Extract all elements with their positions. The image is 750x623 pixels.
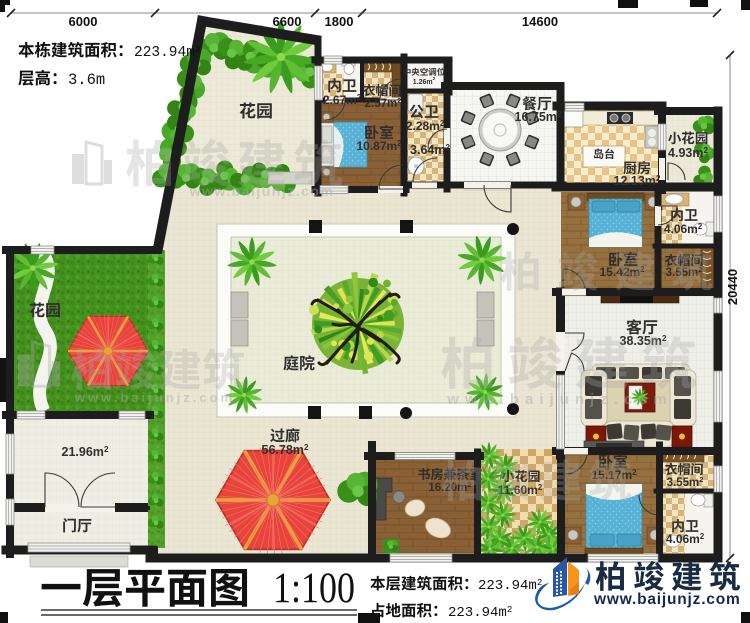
svg-text:21.96m2: 21.96m2 bbox=[62, 445, 109, 459]
svg-text:223.94m2: 223.94m2 bbox=[478, 577, 542, 594]
svg-text:56.78m2: 56.78m2 bbox=[262, 443, 309, 457]
svg-text:3.64m2: 3.64m2 bbox=[410, 143, 450, 157]
svg-text:www.baijunjz.com: www.baijunjz.com bbox=[189, 183, 335, 199]
svg-text:6000: 6000 bbox=[69, 14, 98, 29]
svg-text:12.13m2: 12.13m2 bbox=[614, 174, 661, 188]
svg-text:2.28m2: 2.28m2 bbox=[406, 119, 445, 133]
svg-text:2.67m2: 2.67m2 bbox=[323, 93, 362, 107]
svg-text:223.94m2: 223.94m2 bbox=[448, 604, 512, 621]
svg-text:www.baijunjz.com: www.baijunjz.com bbox=[446, 391, 672, 408]
svg-text:1800: 1800 bbox=[325, 14, 354, 29]
svg-text:223.94m2: 223.94m2 bbox=[134, 44, 201, 61]
svg-text:14600: 14600 bbox=[522, 14, 558, 29]
svg-text:2.57m2: 2.57m2 bbox=[365, 96, 402, 110]
svg-text:4.06m2: 4.06m2 bbox=[664, 222, 703, 236]
svg-text:10.87m2: 10.87m2 bbox=[356, 139, 402, 153]
svg-text:4.93m2: 4.93m2 bbox=[668, 146, 708, 160]
svg-text:3.55m2: 3.55m2 bbox=[667, 475, 704, 489]
svg-text:16.75m2: 16.75m2 bbox=[515, 110, 562, 124]
svg-text:3.6m: 3.6m bbox=[68, 71, 105, 89]
svg-text:20440: 20440 bbox=[725, 269, 740, 305]
svg-text:1:100: 1:100 bbox=[273, 565, 355, 612]
svg-text:www.baijunjz.com: www.baijunjz.com bbox=[74, 390, 235, 405]
svg-text:6600: 6600 bbox=[273, 14, 302, 29]
svg-text:4.06m2: 4.06m2 bbox=[666, 532, 705, 546]
svg-text:www.baijunjz.com: www.baijunjz.com bbox=[593, 591, 741, 608]
